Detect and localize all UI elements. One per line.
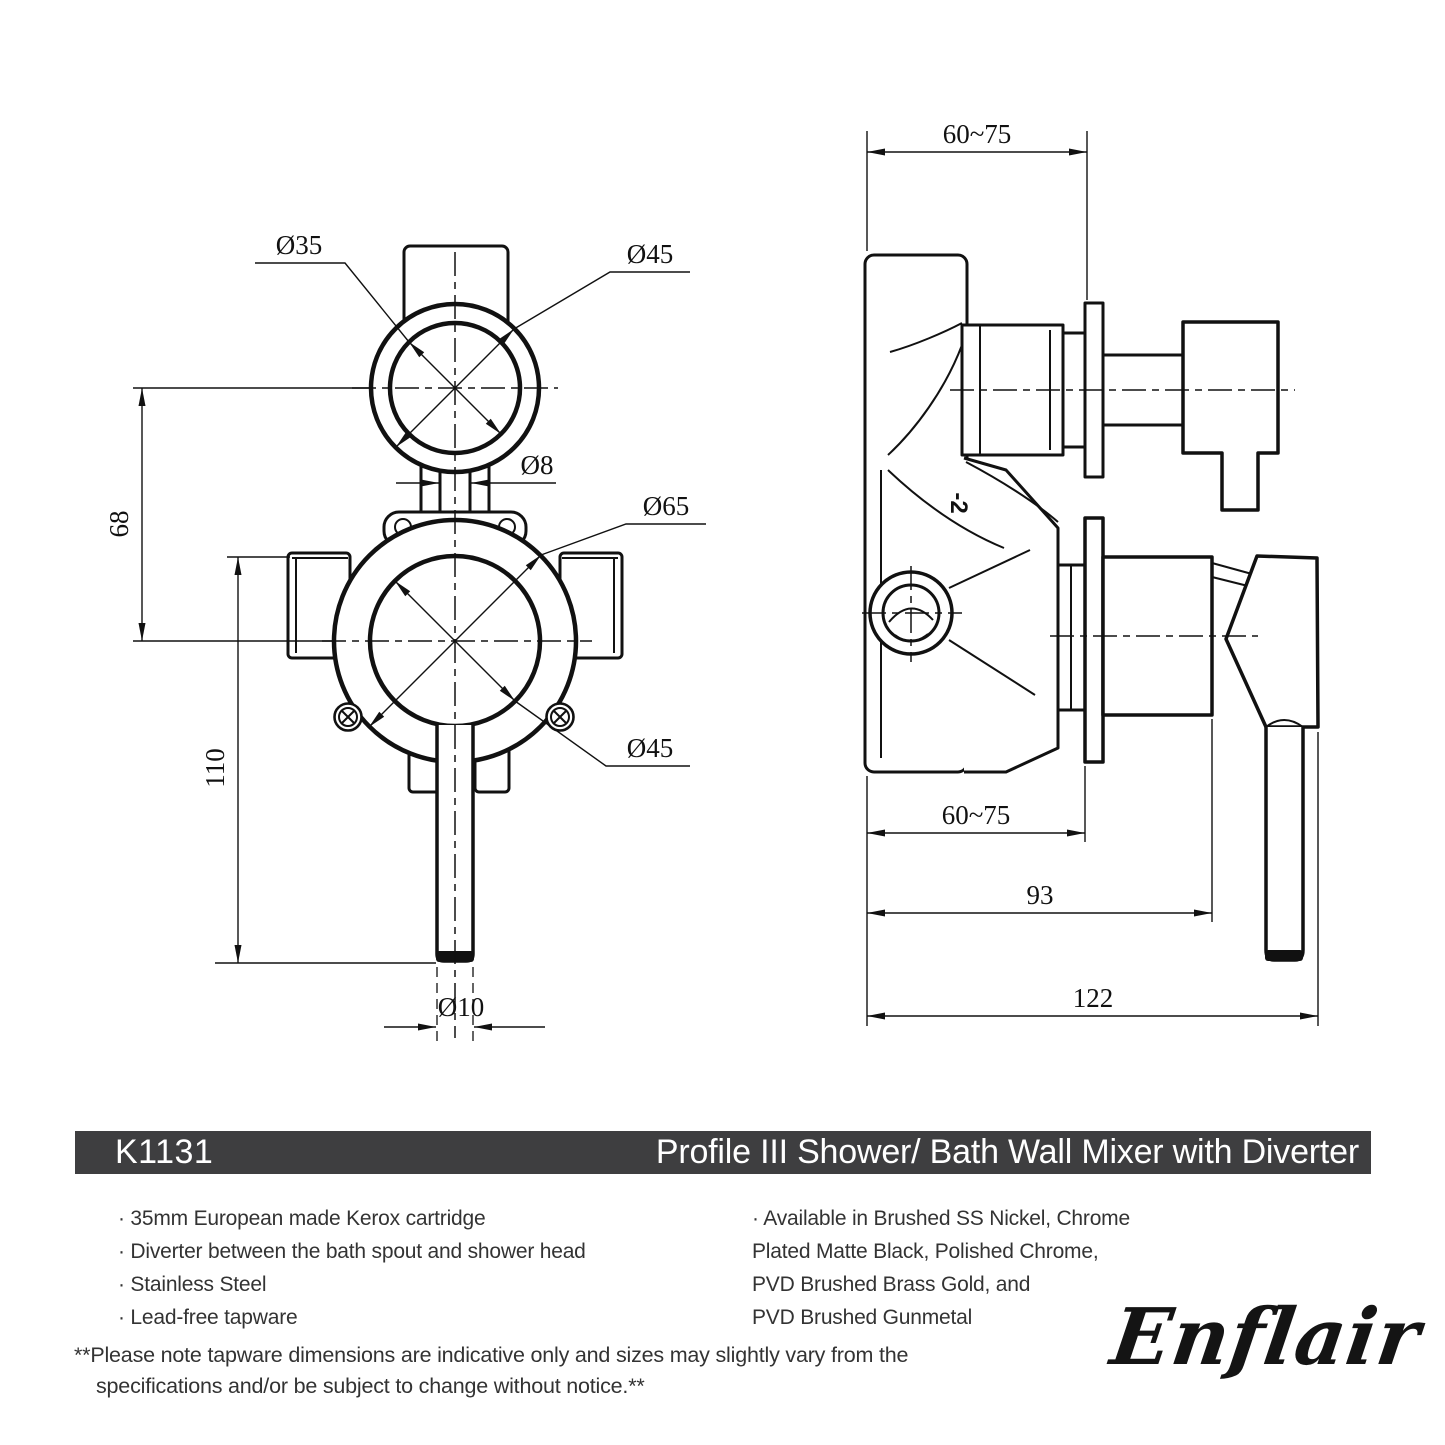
dim-d45body-label: Ø45: [627, 733, 674, 763]
side-diverter-knob: [1183, 322, 1278, 510]
dim-d45top-label: Ø45: [627, 239, 674, 269]
front-screw-left: [335, 704, 362, 731]
side-lower-flange: [1085, 518, 1103, 762]
brand-logo: Enflair: [1080, 1292, 1445, 1432]
feature-item: PVD Brushed Brass Gold, and: [752, 1268, 1130, 1301]
side-cast-body: [964, 458, 1058, 772]
disclaimer-line-2: specifications and/or be subject to chan…: [96, 1371, 908, 1402]
side-handle-rod-cap: [1265, 950, 1303, 961]
feature-item: · Lead-free tapware: [118, 1301, 586, 1334]
feature-item: Plated Matte Black, Polished Chrome,: [752, 1235, 1130, 1268]
feature-item: · Available in Brushed SS Nickel, Chrome: [752, 1202, 1130, 1235]
dim-d35-leader: [255, 263, 409, 342]
side-body-marking: -2: [945, 492, 972, 513]
side-view: -2 60~75 60~75 93 122: [862, 119, 1318, 1026]
side-handle-rod: [1266, 727, 1303, 960]
disclaimer-line-1: **Please note tapware dimensions are ind…: [74, 1340, 908, 1371]
side-handle-stem2: [1212, 577, 1248, 586]
dim-d10-label: Ø10: [438, 992, 485, 1022]
feature-item: PVD Brushed Gunmetal: [752, 1301, 1130, 1334]
dim-122-label: 122: [1073, 983, 1114, 1013]
spec-sheet-page: 68 110 Ø10 Ø8 Ø35 Ø45 Ø65: [0, 0, 1445, 1445]
dim-d65-label: Ø65: [643, 491, 690, 521]
feature-list-left: · 35mm European made Kerox cartridge · D…: [118, 1202, 586, 1334]
side-handle-stem1: [1212, 563, 1252, 574]
technical-drawing: 68 110 Ø10 Ø8 Ø35 Ø45 Ø65: [0, 0, 1445, 1100]
feature-list-right: · Available in Brushed SS Nickel, Chrome…: [752, 1202, 1130, 1334]
dim-68-label: 68: [104, 511, 134, 538]
dim-d8-label: Ø8: [521, 450, 554, 480]
feature-item: · 35mm European made Kerox cartridge: [118, 1202, 586, 1235]
feature-item: · Diverter between the bath spout and sh…: [118, 1235, 586, 1268]
product-banner: K1131 Profile III Shower/ Bath Wall Mixe…: [75, 1131, 1371, 1174]
dim-110-label: 110: [200, 748, 230, 788]
front-view: 68 110 Ø10 Ø8 Ø35 Ø45 Ø65: [104, 230, 706, 1042]
product-title: Profile III Shower/ Bath Wall Mixer with…: [656, 1131, 1359, 1174]
disclaimer-note: **Please note tapware dimensions are ind…: [74, 1340, 908, 1402]
dim-93-label: 93: [1027, 880, 1054, 910]
feature-item: · Stainless Steel: [118, 1268, 586, 1301]
dim-d45top-leader: [514, 272, 690, 329]
dim-6075-top-label: 60~75: [943, 119, 1012, 149]
product-code: K1131: [115, 1131, 213, 1174]
dim-6075-bottom-label: 60~75: [942, 800, 1011, 830]
dim-d35-label: Ø35: [276, 230, 323, 260]
side-handle-head: [1226, 556, 1318, 727]
dim-d65-leader: [541, 524, 706, 555]
